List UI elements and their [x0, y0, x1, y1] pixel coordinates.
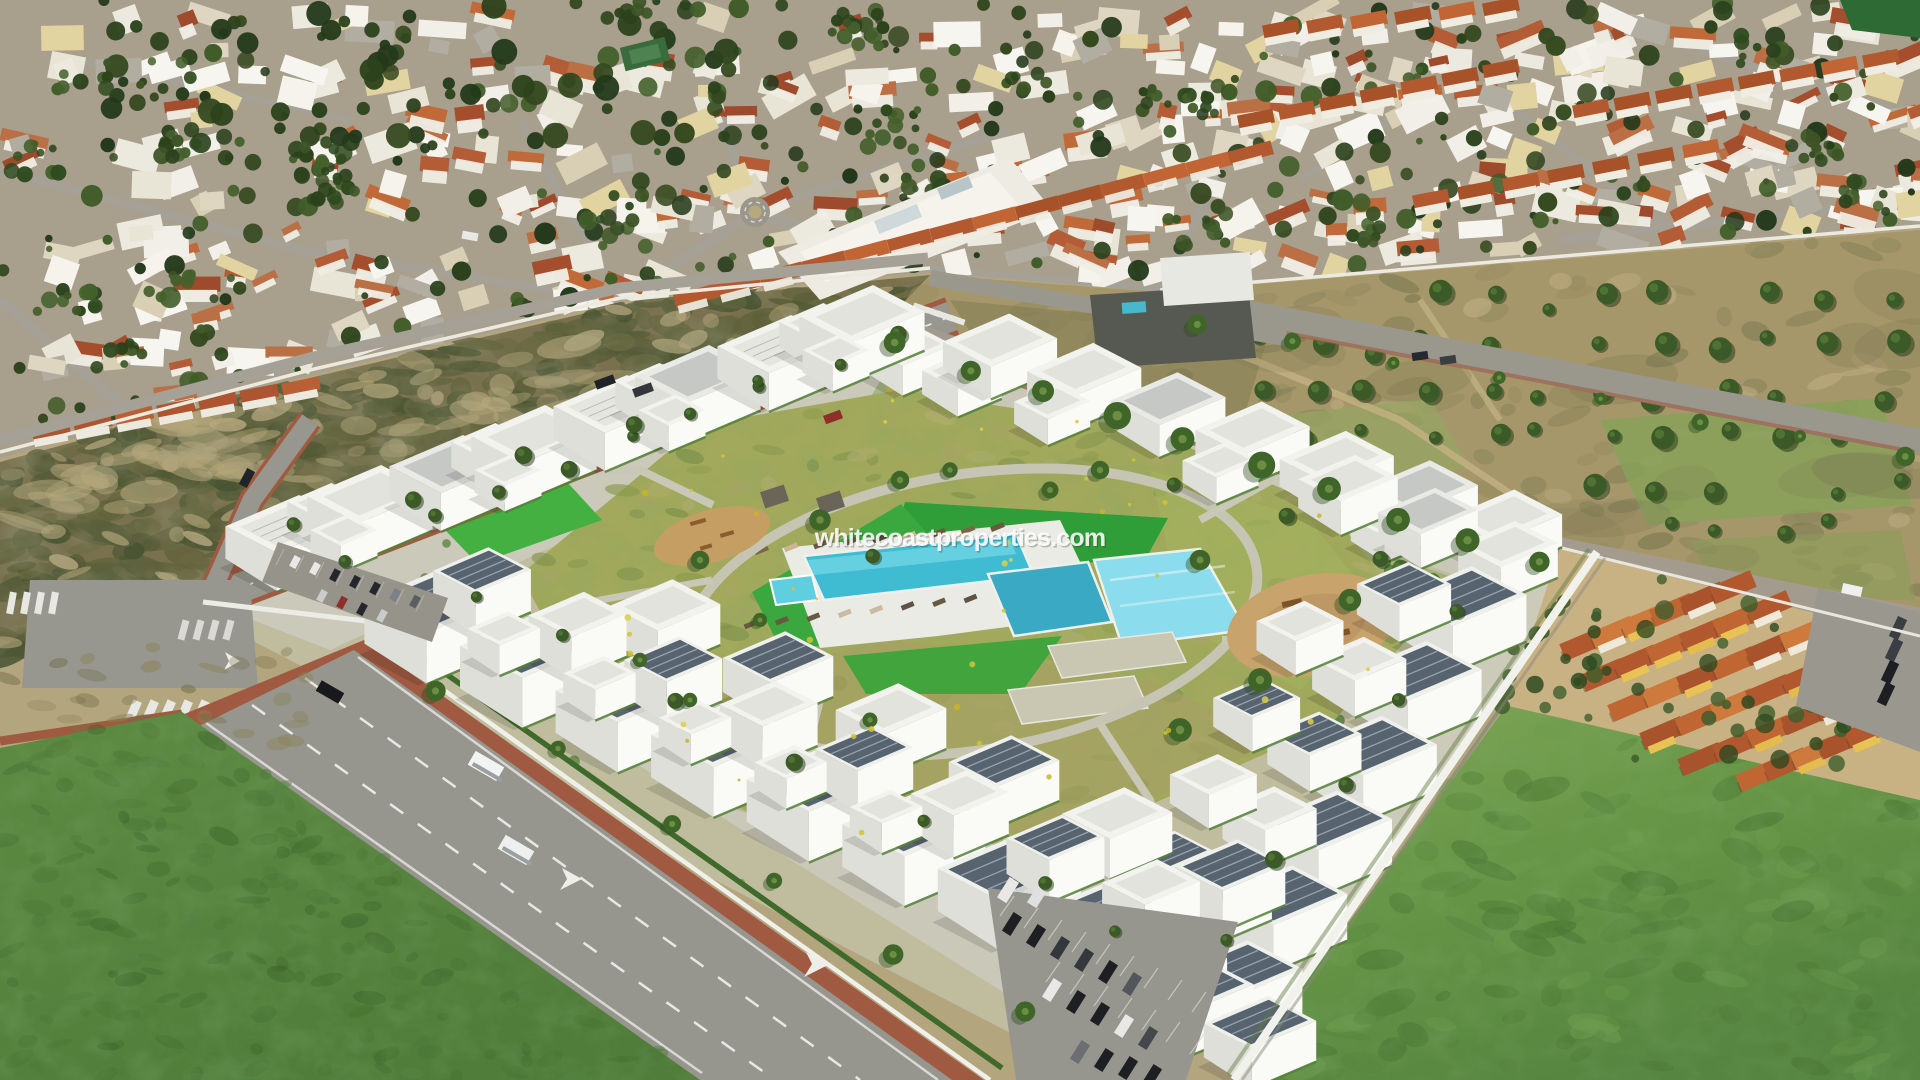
svg-text:whitecoastproperties.com: whitecoastproperties.com	[814, 524, 1106, 552]
